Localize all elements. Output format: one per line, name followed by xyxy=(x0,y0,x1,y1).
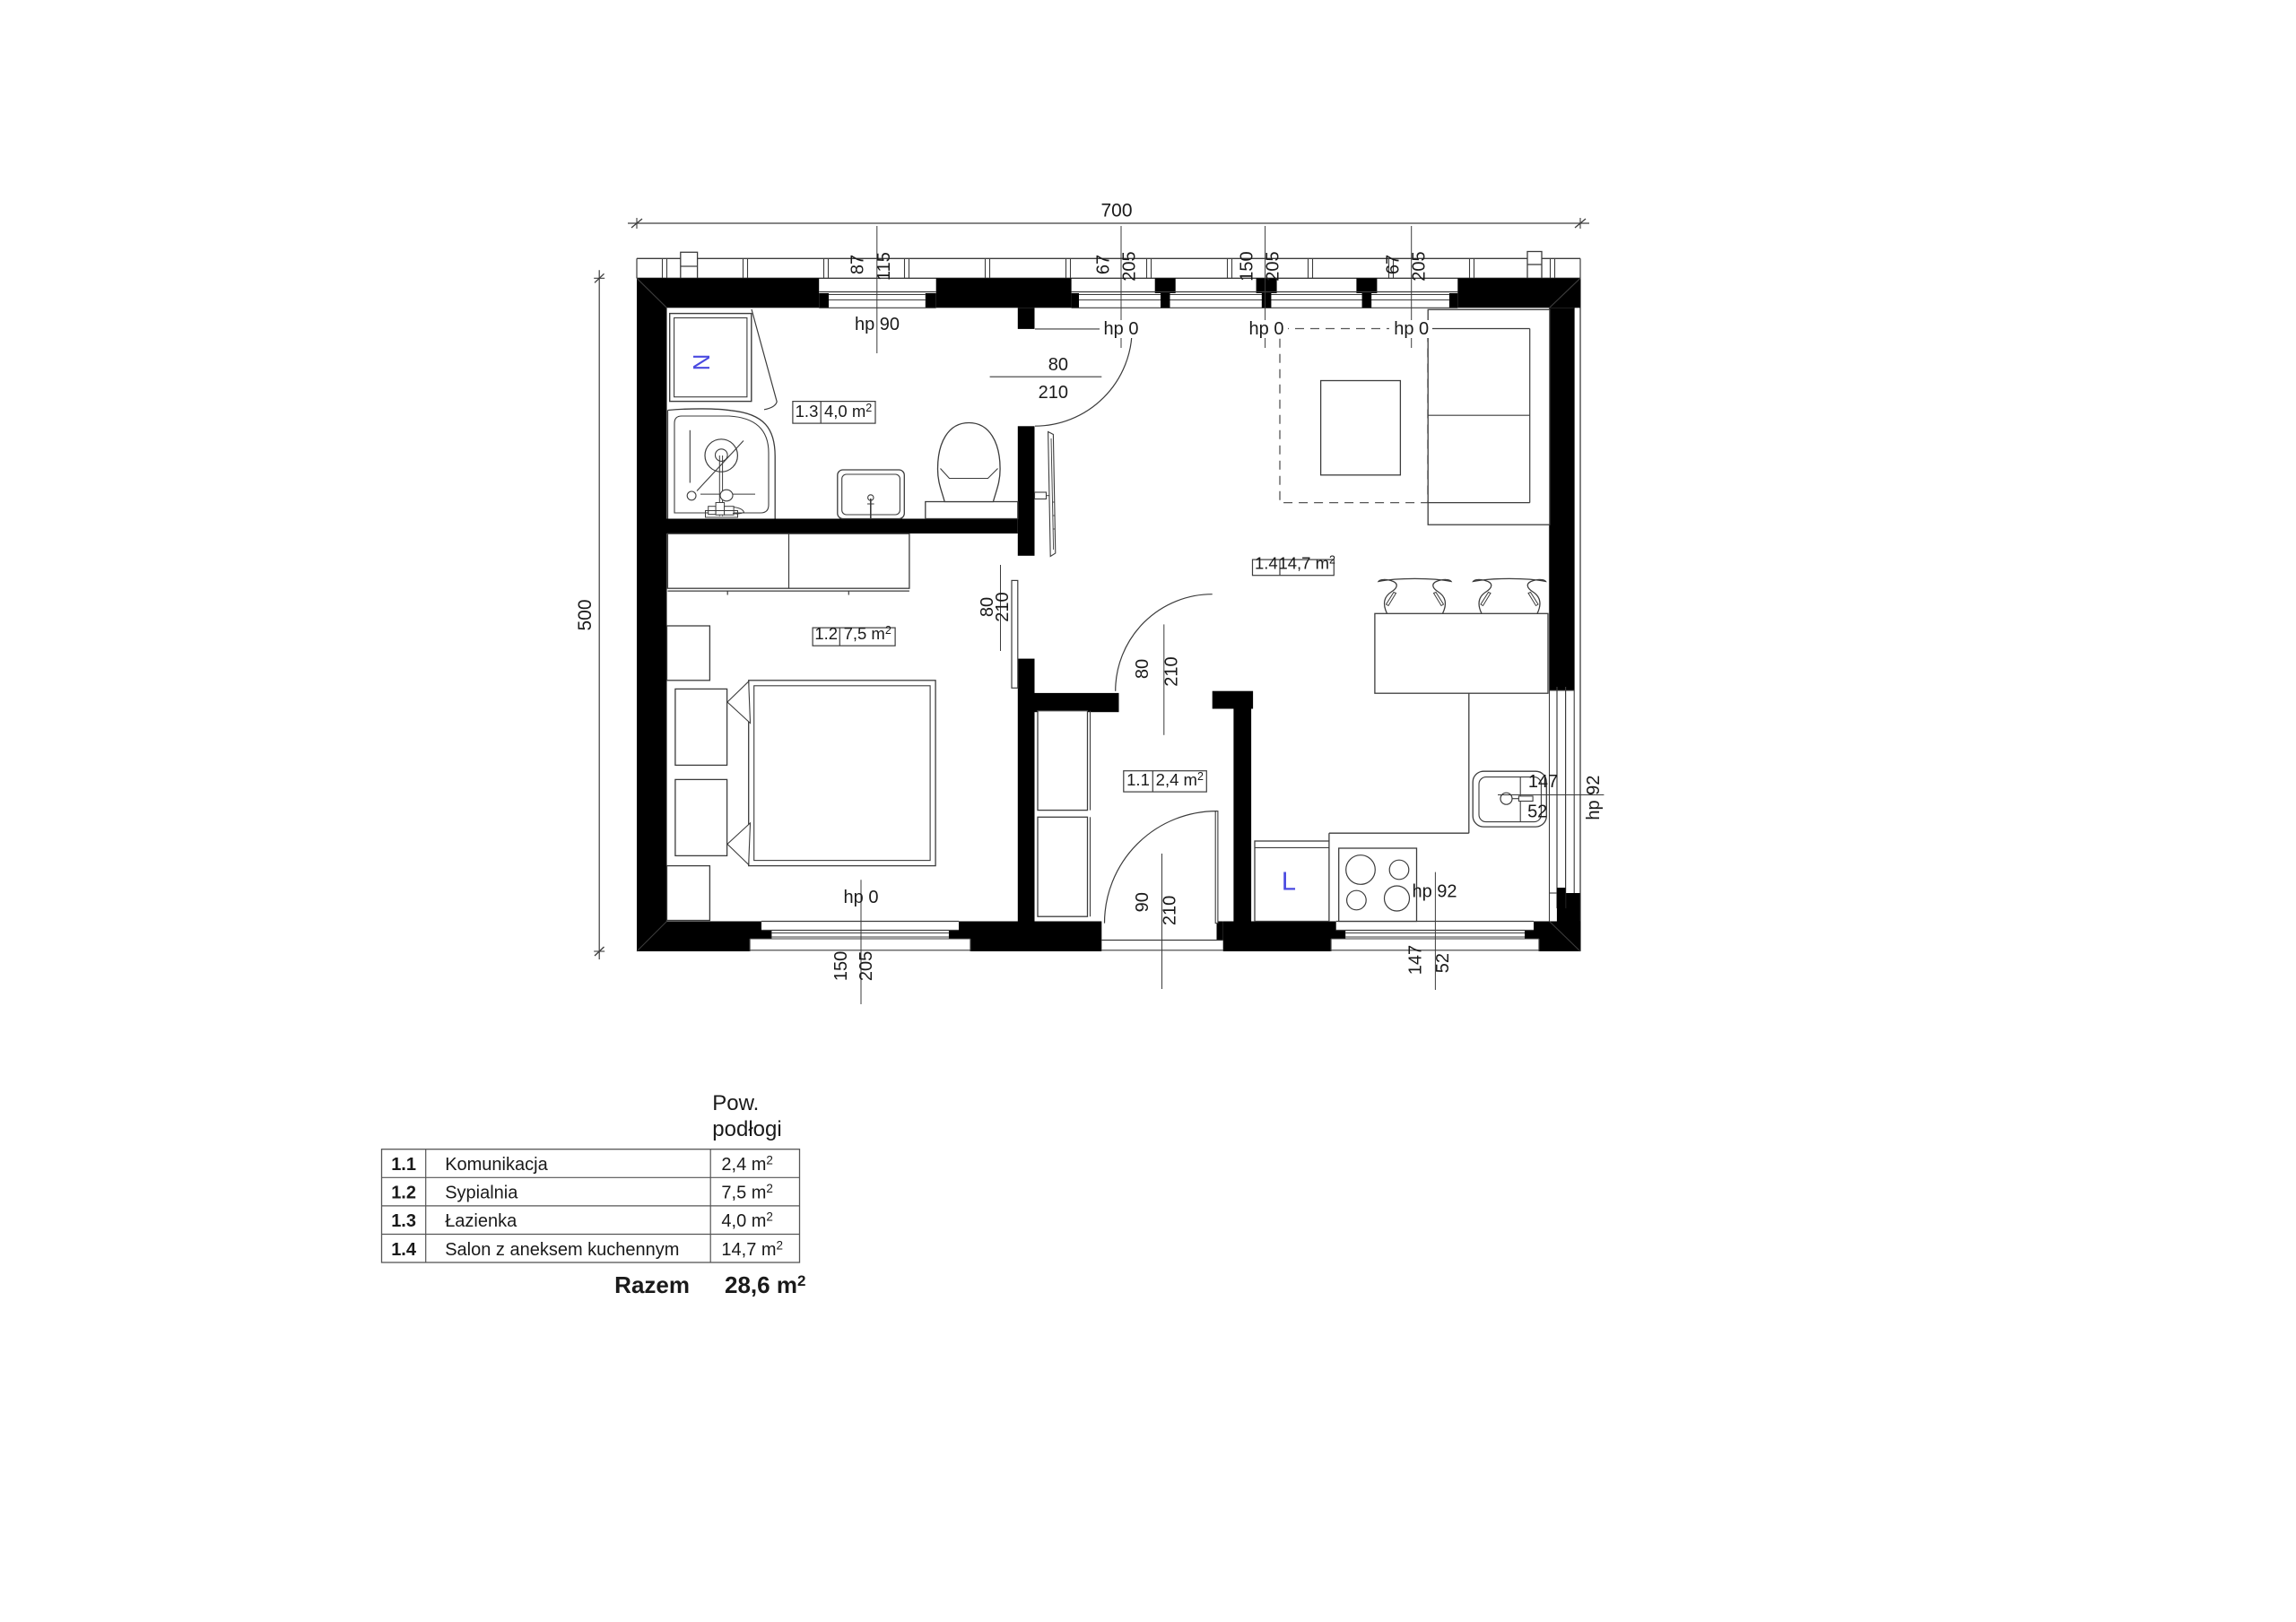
svg-text:hp 0: hp 0 xyxy=(1249,319,1284,339)
svg-text:Pow.: Pow. xyxy=(712,1091,759,1115)
svg-text:210: 210 xyxy=(993,592,1013,621)
svg-text:52: 52 xyxy=(1433,953,1453,973)
svg-text:210: 210 xyxy=(1160,896,1179,925)
svg-text:147: 147 xyxy=(1406,945,1426,975)
svg-text:Salon z aneksem kuchennym: Salon z aneksem kuchennym xyxy=(445,1240,679,1260)
svg-text:1.2: 1.2 xyxy=(391,1184,416,1203)
svg-text:205: 205 xyxy=(1410,251,1430,281)
svg-text:L: L xyxy=(1282,868,1296,897)
svg-text:Łazienka: Łazienka xyxy=(445,1211,517,1231)
svg-text:205: 205 xyxy=(1120,251,1140,281)
svg-text:hp 92: hp 92 xyxy=(1584,776,1604,820)
svg-text:podłogi: podłogi xyxy=(712,1117,781,1141)
svg-text:90: 90 xyxy=(1133,892,1152,912)
svg-text:hp 90: hp 90 xyxy=(855,315,900,334)
svg-text:1.4: 1.4 xyxy=(391,1240,417,1260)
svg-text:52: 52 xyxy=(1527,802,1547,822)
svg-text:14,7 m2: 14,7 m2 xyxy=(721,1238,783,1260)
svg-text:67: 67 xyxy=(1384,255,1404,274)
svg-text:Razem: Razem xyxy=(614,1271,690,1298)
svg-text:hp 92: hp 92 xyxy=(1412,882,1457,902)
svg-text:4,0 m2: 4,0 m2 xyxy=(721,1210,773,1232)
svg-text:hp 0: hp 0 xyxy=(844,888,879,907)
svg-text:1.3: 1.3 xyxy=(796,402,819,421)
svg-text:1.4: 1.4 xyxy=(1255,554,1278,573)
svg-text:1.1: 1.1 xyxy=(391,1155,416,1175)
svg-text:500: 500 xyxy=(575,599,596,630)
svg-text:14,7 m2: 14,7 m2 xyxy=(1278,554,1335,573)
svg-text:150: 150 xyxy=(831,951,851,981)
svg-text:1.1: 1.1 xyxy=(1126,770,1150,789)
svg-text:hp 0: hp 0 xyxy=(1394,319,1429,339)
svg-text:hp 0: hp 0 xyxy=(1104,319,1139,339)
svg-text:N: N xyxy=(688,354,715,371)
svg-text:87: 87 xyxy=(848,255,868,274)
svg-text:147: 147 xyxy=(1528,772,1558,792)
svg-text:1.3: 1.3 xyxy=(391,1211,416,1231)
svg-text:700: 700 xyxy=(1100,201,1132,221)
svg-text:205: 205 xyxy=(1264,251,1283,281)
svg-text:205: 205 xyxy=(857,951,876,981)
svg-text:150: 150 xyxy=(1238,251,1257,281)
svg-text:2,4 m2: 2,4 m2 xyxy=(1156,770,1204,789)
svg-text:Sypialnia: Sypialnia xyxy=(445,1184,518,1203)
svg-text:67: 67 xyxy=(1094,255,1114,274)
svg-text:210: 210 xyxy=(1039,383,1068,403)
svg-text:7,5 m2: 7,5 m2 xyxy=(844,624,891,643)
svg-text:115: 115 xyxy=(874,252,894,281)
svg-text:80: 80 xyxy=(1048,355,1068,375)
svg-text:4,0 m2: 4,0 m2 xyxy=(824,402,872,421)
svg-text:Komunikacja: Komunikacja xyxy=(445,1155,548,1175)
svg-text:210: 210 xyxy=(1162,656,1182,686)
svg-text:7,5 m2: 7,5 m2 xyxy=(721,1182,773,1203)
svg-text:80: 80 xyxy=(1133,659,1152,679)
svg-text:1.2: 1.2 xyxy=(814,624,838,643)
svg-text:28,6 m2: 28,6 m2 xyxy=(725,1271,805,1298)
svg-text:2,4 m2: 2,4 m2 xyxy=(721,1154,773,1175)
